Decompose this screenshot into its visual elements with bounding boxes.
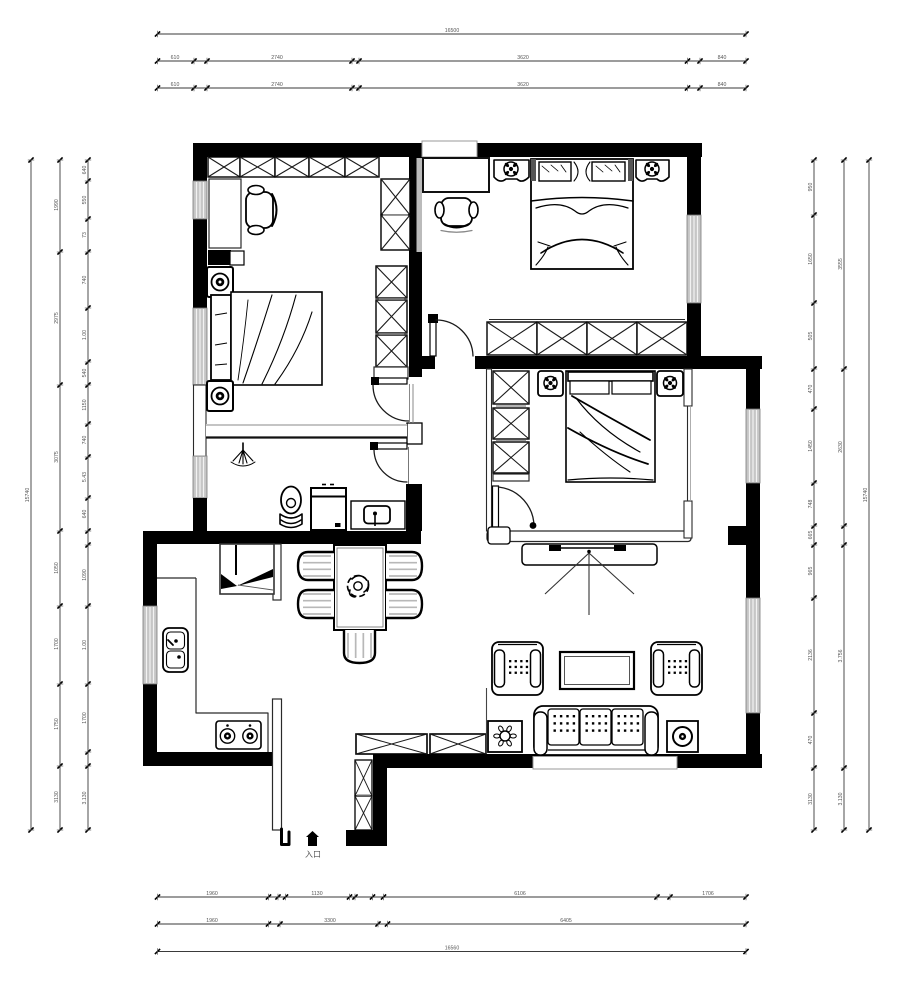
svg-text:2740: 2740 <box>271 55 283 61</box>
svg-text:1090: 1090 <box>82 569 88 581</box>
svg-text:1.00: 1.00 <box>82 640 88 650</box>
svg-text:2136: 2136 <box>808 649 814 661</box>
svg-text:3.756: 3.756 <box>838 649 844 662</box>
svg-text:6405: 6405 <box>560 918 572 924</box>
svg-text:1706: 1706 <box>702 891 714 897</box>
svg-text:470: 470 <box>808 736 814 745</box>
svg-text:965: 965 <box>808 567 814 576</box>
svg-text:1450: 1450 <box>808 440 814 452</box>
svg-text:1750: 1750 <box>54 718 60 730</box>
svg-text:470: 470 <box>808 385 814 394</box>
svg-text:6106: 6106 <box>514 891 526 897</box>
svg-text:1130: 1130 <box>311 891 322 897</box>
svg-text:1700: 1700 <box>54 638 60 650</box>
svg-text:640: 640 <box>82 510 88 519</box>
svg-text:950: 950 <box>808 183 814 192</box>
svg-text:16500: 16500 <box>445 28 460 34</box>
svg-text:3130: 3130 <box>808 793 814 805</box>
svg-text:16560: 16560 <box>445 945 460 951</box>
svg-text:1150: 1150 <box>82 399 88 410</box>
svg-text:610: 610 <box>171 55 180 61</box>
svg-text:入口: 入口 <box>305 850 321 859</box>
svg-text:15740: 15740 <box>25 488 31 503</box>
svg-text:540: 540 <box>82 369 88 378</box>
svg-text:640: 640 <box>82 166 88 175</box>
svg-text:2975: 2975 <box>54 312 60 324</box>
svg-text:3075: 3075 <box>54 451 60 463</box>
svg-text:2630: 2630 <box>838 441 844 453</box>
svg-text:3.130: 3.130 <box>82 791 88 804</box>
svg-text:740: 740 <box>82 276 88 285</box>
svg-text:1960: 1960 <box>206 918 218 924</box>
svg-text:1050: 1050 <box>54 562 60 574</box>
svg-text:610: 610 <box>171 82 180 88</box>
svg-text:740: 740 <box>82 436 88 445</box>
svg-text:3300: 3300 <box>324 918 336 924</box>
svg-text:73: 73 <box>82 232 88 238</box>
svg-text:2740: 2740 <box>271 82 283 88</box>
svg-text:748: 748 <box>808 500 814 509</box>
svg-text:1700: 1700 <box>82 712 88 724</box>
svg-text:840: 840 <box>718 82 727 88</box>
svg-text:840: 840 <box>718 55 727 61</box>
svg-text:5.43: 5.43 <box>82 472 88 482</box>
svg-text:3130: 3130 <box>54 791 60 803</box>
svg-text:15740: 15740 <box>863 488 869 503</box>
svg-text:1650: 1650 <box>808 253 814 265</box>
svg-text:1.00: 1.00 <box>82 330 88 340</box>
svg-text:3.130: 3.130 <box>838 792 844 805</box>
svg-text:3620: 3620 <box>517 55 529 61</box>
svg-text:3620: 3620 <box>517 82 529 88</box>
svg-text:505: 505 <box>808 332 814 341</box>
svg-text:550: 550 <box>82 196 88 205</box>
svg-text:1960: 1960 <box>206 891 218 897</box>
svg-text:1990: 1990 <box>54 199 60 211</box>
svg-text:665: 665 <box>808 531 814 540</box>
svg-text:3555: 3555 <box>838 258 844 270</box>
